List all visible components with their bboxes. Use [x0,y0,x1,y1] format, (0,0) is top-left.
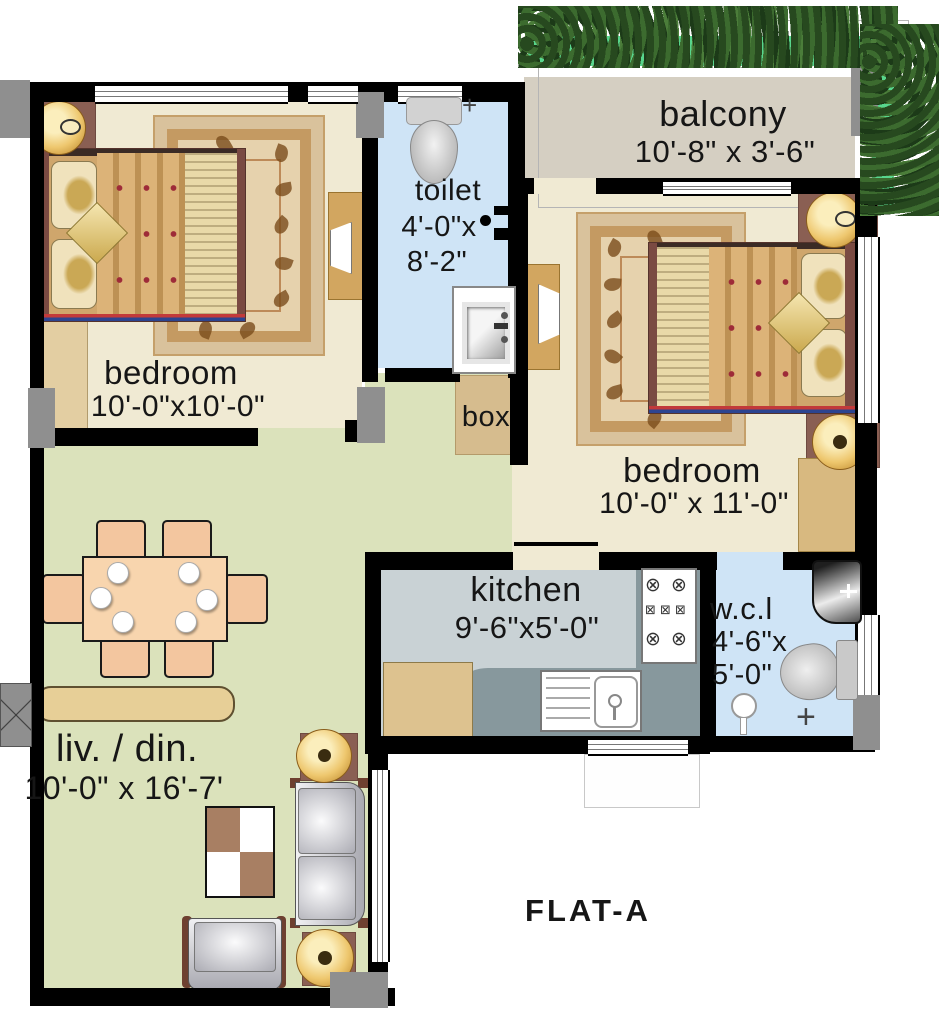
wall-wc-bottom [700,736,875,752]
coffee-table [205,806,275,898]
wall-toilet-bottom [385,368,460,382]
door-gap-kitchen [513,552,599,570]
lamp-dot [318,749,331,762]
plate [107,562,129,584]
dining-chair [100,636,150,678]
door-leaf-line [514,542,598,546]
plate [178,562,200,584]
lamp-ring [60,119,81,135]
room-dims-toilet-2: 8'-2" [407,248,467,277]
utility-outline [584,754,700,808]
wall-kitchen-left [365,552,381,752]
wc-basin-tap [847,584,850,598]
lamp-dot [318,951,332,965]
sideboard [35,686,235,722]
bed-footboard [237,149,245,321]
window-bedroom1-a [95,84,288,104]
bed-trim [649,406,857,413]
sofa-cushion [298,788,356,854]
stove-burner-icon: ⊗ [671,576,687,595]
stove-burner-icon: ⊗ [671,630,687,649]
room-label-kitchen: kitchen [470,573,581,607]
lamp-dot [833,435,847,449]
bedroom2-tv [538,284,560,344]
wall-bedroom1-bottom [30,428,260,446]
toilet-basin-unit [452,286,516,374]
window-bedroom2-right [856,237,880,423]
stove-element-icon: ⊠ [660,604,671,617]
wall-left [30,82,44,1004]
sink-faucet-stem [613,706,616,720]
stove-element-icon: ⊠ [645,604,656,617]
bedroom2-wardrobe [798,458,858,552]
column-toilet-left [356,92,384,138]
bed-footboard [649,243,657,413]
plate [175,611,197,633]
column-top-left [0,80,30,138]
dining-chair [164,636,214,678]
stove-burner-icon: ⊗ [645,630,661,649]
kitchen-cabinet [383,662,473,744]
wc-drain-stem [740,717,747,735]
room-dims-bedroom2: 10'-0" x 11'-0" [599,489,789,519]
plus-mark: + [796,700,816,734]
lamp-ring [835,211,856,227]
bedroom2-lamp-top [806,192,862,248]
sofa [290,778,368,928]
bedroom1-tv [330,222,352,274]
plus-mark: + [462,92,477,118]
shaft-x-box [0,683,32,747]
armchair-cushion [194,922,276,972]
room-label-bedroom1: bedroom [104,356,238,389]
wc-floor-drain [731,693,757,719]
window-wc-right [856,615,880,695]
room-dims-living: 10'-0" x 16'-7' [24,772,223,804]
dining-chair [42,574,86,624]
room-label-toilet: toilet [415,176,481,206]
room-dims-wc-1: 4'-6"x [712,628,787,657]
stove-element-icon: ⊠ [675,604,686,617]
stove-burner-icon: ⊗ [645,576,661,595]
basin-tap [501,312,508,319]
wall-kitchen-top [365,552,872,570]
window-bedroom1-b [308,84,358,104]
basin-tap [501,336,508,343]
bedroom1-bed [36,148,246,322]
door-stop-dot [480,215,491,226]
bed-sheet [185,153,237,315]
door-gap-wc [717,552,783,570]
plate [196,589,218,611]
plate [90,587,112,609]
room-label-bedroom2: bedroom [623,454,761,488]
window-living-right [370,770,390,962]
flat-title: FLAT-A [525,895,651,926]
floor-plan: + ⊗ ⊗ [0,0,939,1014]
column-hall [357,387,385,443]
window-kitchen [588,738,688,756]
armchair [182,914,286,992]
column-wc-corner [853,693,880,750]
dining-chair [224,574,268,624]
door-hinge-notch [494,206,510,215]
hedge-right [860,24,939,216]
room-dims-bedroom1: 10'-0"x10'-0" [91,392,265,422]
door-hinge-notch [494,228,510,240]
plate [112,611,134,633]
kitchen-sink-unit [540,670,642,732]
window-bedroom2-balcony [663,180,791,196]
room-label-balcony: balcony [659,96,787,132]
wc-basin [812,560,862,624]
sink-drainboard [546,677,590,723]
bed-trim [37,314,245,321]
entrance-step [330,972,388,1008]
bedroom2-bed [648,242,858,414]
sofa-cushion [298,856,356,920]
basin-handle [494,323,508,329]
bed-sheet [657,247,709,407]
column-left-mid [28,388,55,448]
label-box: box [462,403,510,432]
room-dims-wc-2: 5'-0" [712,661,772,690]
door-gap-bedroom1 [258,428,345,446]
wc-toilet-tank [836,640,858,700]
round-side-table [296,729,352,783]
hedge-top [518,6,898,68]
room-label-wc: w.c.l [710,593,773,624]
room-dims-toilet-1: 4'-0"x [401,213,476,242]
door-gap-balcony [534,178,596,194]
room-dims-balcony: 10'-8" x 3'-6" [635,136,815,167]
room-label-living: liv. / din. [56,730,198,768]
room-dims-kitchen: 9'-6"x5'-0" [455,612,599,643]
